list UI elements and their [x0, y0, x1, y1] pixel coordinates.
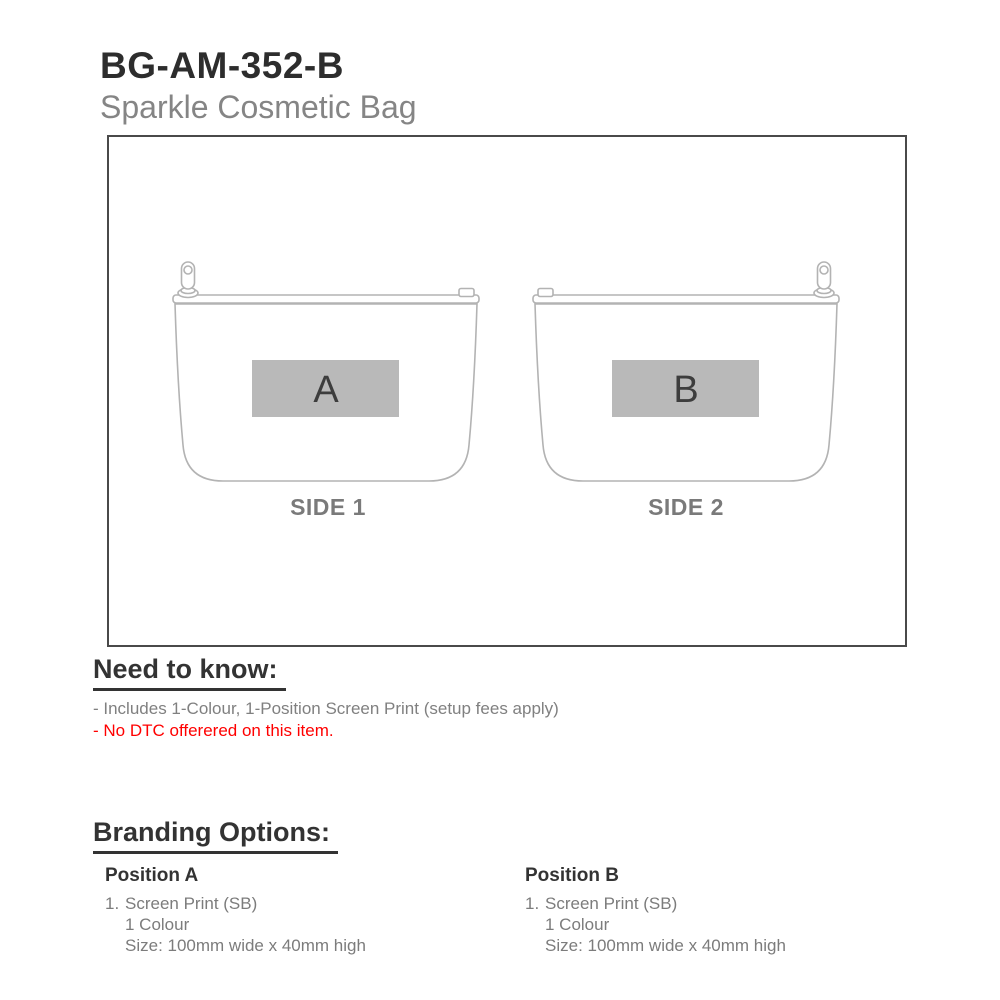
product-code-title: BG-AM-352-B	[100, 45, 344, 87]
side1-label: SIDE 1	[218, 494, 438, 521]
position-a-method-line: 1.Screen Print (SB)	[105, 893, 505, 914]
branding-position-a: Position A 1.Screen Print (SB) 1 Colour …	[105, 865, 505, 956]
need-to-know-heading: Need to know:	[93, 654, 286, 691]
zipper-pull-icon	[178, 262, 198, 298]
zipper-end-tab	[459, 289, 474, 297]
branding-position-b: Position B 1.Screen Print (SB) 1 Colour …	[525, 865, 925, 956]
branding-options-heading: Branding Options:	[93, 817, 338, 854]
position-a-item-number: 1.	[105, 893, 125, 914]
product-name-subtitle: Sparkle Cosmetic Bag	[100, 89, 417, 126]
position-b-size: Size: 100mm wide x 40mm high	[525, 935, 925, 956]
position-b-title: Position B	[525, 865, 925, 887]
zipper-end-tab	[538, 289, 553, 297]
zipper-band	[533, 295, 839, 303]
bag-side2-svg: B	[526, 257, 846, 487]
print-area-b-letter: B	[673, 369, 698, 411]
side2-label: SIDE 2	[576, 494, 796, 521]
zipper-pull-icon	[814, 262, 834, 298]
need-to-know-note-includes: - Includes 1-Colour, 1-Position Screen P…	[93, 699, 559, 719]
position-b-method-line: 1.Screen Print (SB)	[525, 893, 925, 914]
need-to-know-note-no-dtc: - No DTC offerered on this item.	[93, 721, 334, 741]
spec-sheet-page: BG-AM-352-B Sparkle Cosmetic Bag A	[0, 0, 1000, 1000]
zipper-band	[173, 295, 479, 303]
position-b-colour: 1 Colour	[525, 914, 925, 935]
bag-side1-svg: A	[166, 257, 486, 487]
position-a-method: Screen Print (SB)	[125, 894, 257, 913]
position-a-size: Size: 100mm wide x 40mm high	[105, 935, 505, 956]
position-b-method: Screen Print (SB)	[545, 894, 677, 913]
print-area-a-letter: A	[313, 369, 339, 411]
position-b-item-number: 1.	[525, 893, 545, 914]
bag-side1-illustration: A	[166, 257, 486, 487]
bag-side2-illustration: B	[526, 257, 846, 487]
position-a-colour: 1 Colour	[105, 914, 505, 935]
position-a-title: Position A	[105, 865, 505, 887]
